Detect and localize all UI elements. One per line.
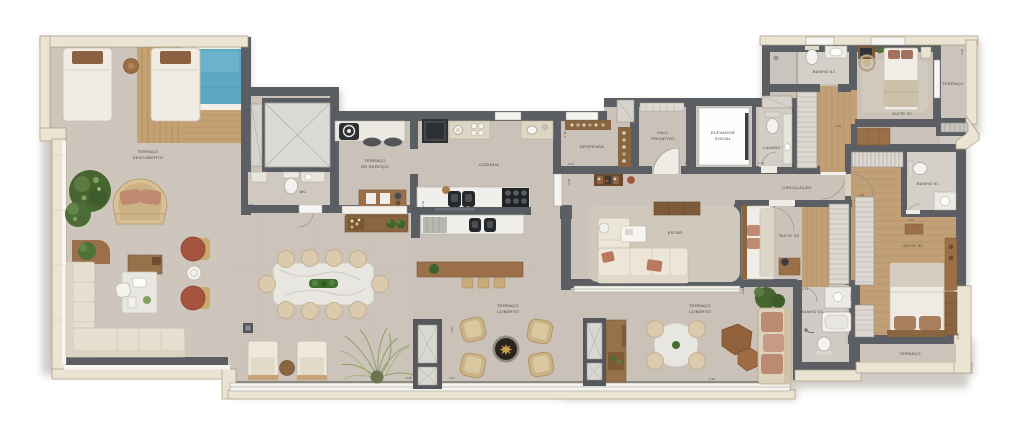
svg-text:SUITE 02: SUITE 02 <box>892 111 912 116</box>
svg-text:5.41: 5.41 <box>573 278 579 282</box>
svg-text:ESTAR: ESTAR <box>668 230 683 235</box>
svg-text:2.36: 2.36 <box>835 124 841 128</box>
svg-text:1.40: 1.40 <box>563 131 567 137</box>
svg-text:3.25: 3.25 <box>746 203 752 207</box>
svg-text:COZINHA: COZINHA <box>479 162 499 167</box>
svg-text:LAVABO: LAVABO <box>763 145 780 150</box>
svg-text:BANHO 02: BANHO 02 <box>813 69 836 74</box>
svg-text:BANHO 03: BANHO 03 <box>801 309 824 314</box>
svg-text:4.49: 4.49 <box>553 119 557 125</box>
svg-text:TERRAÇO: TERRAÇO <box>689 303 711 308</box>
svg-text:2.42: 2.42 <box>960 49 964 55</box>
svg-text:TERRAÇO: TERRAÇO <box>137 149 159 154</box>
svg-text:ELEVADOR: ELEVADOR <box>711 130 735 135</box>
svg-text:SOCIAL: SOCIAL <box>715 136 732 141</box>
svg-text:1.13: 1.13 <box>758 161 764 165</box>
svg-text:TERRAÇO: TERRAÇO <box>497 303 519 308</box>
svg-text:COBERTO: COBERTO <box>497 309 519 314</box>
svg-text:2.46: 2.46 <box>334 201 338 207</box>
svg-text:5.81: 5.81 <box>863 149 869 153</box>
svg-text:1.51: 1.51 <box>908 218 914 222</box>
svg-text:0.90: 0.90 <box>741 288 745 294</box>
svg-text:SUITE 01: SUITE 01 <box>903 243 923 248</box>
svg-text:2.40: 2.40 <box>247 203 253 207</box>
svg-text:CIRCULAÇÃO: CIRCULAÇÃO <box>782 185 811 190</box>
svg-text:1.41: 1.41 <box>802 287 808 291</box>
svg-text:1.31: 1.31 <box>849 294 853 300</box>
svg-text:5.62: 5.62 <box>406 376 412 380</box>
svg-text:DESPENSA: DESPENSA <box>580 144 604 149</box>
svg-text:2.79: 2.79 <box>421 201 425 207</box>
svg-text:0.90: 0.90 <box>450 327 454 333</box>
svg-text:TERRAÇO: TERRAÇO <box>364 158 386 163</box>
svg-text:DE SERVIÇO: DE SERVIÇO <box>361 164 389 169</box>
svg-text:TERRAÇO: TERRAÇO <box>942 81 964 86</box>
svg-text:2.30: 2.30 <box>794 331 798 337</box>
svg-text:2.92: 2.92 <box>709 377 715 381</box>
svg-text:1.80: 1.80 <box>858 193 864 197</box>
svg-text:BANHO 01: BANHO 01 <box>917 181 940 186</box>
svg-text:WC: WC <box>299 189 306 194</box>
svg-text:TERRAÇO: TERRAÇO <box>899 351 921 356</box>
svg-text:SUITE 03: SUITE 03 <box>779 233 799 238</box>
svg-text:DESCOBERTO: DESCOBERTO <box>133 155 164 160</box>
svg-text:1.50: 1.50 <box>685 161 691 165</box>
svg-text:3.48: 3.48 <box>567 179 571 185</box>
svg-text:HALL: HALL <box>657 130 669 135</box>
svg-text:4.41: 4.41 <box>449 376 455 380</box>
svg-text:2.38: 2.38 <box>780 84 786 88</box>
svg-text:0.70: 0.70 <box>948 117 954 121</box>
svg-text:COBERTO: COBERTO <box>689 309 711 314</box>
svg-text:2.07: 2.07 <box>568 162 574 166</box>
svg-text:PRIVATIVO: PRIVATIVO <box>651 136 674 141</box>
svg-text:2.50: 2.50 <box>956 333 960 339</box>
